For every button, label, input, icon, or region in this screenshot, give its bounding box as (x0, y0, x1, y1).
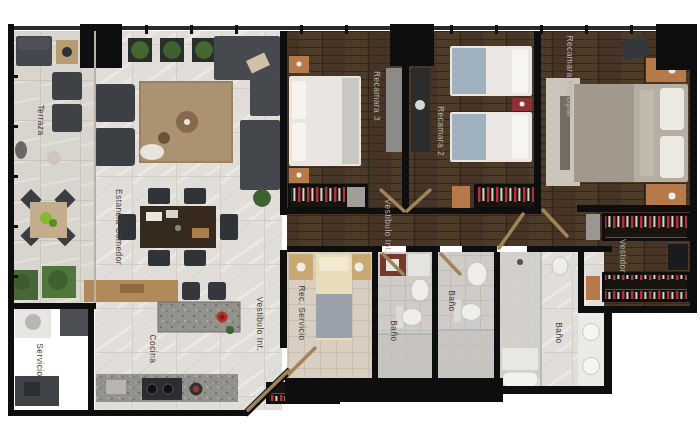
wall-living-recamaras (280, 31, 287, 215)
dining-chair (220, 214, 238, 240)
room-label-cocina: Cocina (148, 335, 158, 364)
wall-bano1-bano2 (432, 252, 438, 378)
dining-chair (184, 250, 206, 266)
toilet (461, 304, 481, 321)
wall-vestibulo-banos-1 (287, 246, 382, 252)
place-setting (146, 212, 162, 221)
pillow (292, 123, 306, 161)
wall-servicio-cocina (88, 309, 94, 410)
table-decor (184, 119, 190, 125)
room-label-vestibulo-recamaras: Vestibulo Int. (383, 199, 393, 253)
shelving-unit (386, 68, 402, 152)
wall-right-bath (604, 308, 612, 390)
wall-bano2-principal (494, 252, 500, 386)
room-label-recamara3: Recamara 3 (372, 71, 382, 121)
basin (297, 263, 306, 272)
lamp (297, 62, 302, 67)
kitchen-sink (106, 380, 126, 394)
wall-vestibulo-recservicio (280, 250, 287, 348)
table-lamp (62, 47, 72, 57)
mullion (190, 25, 193, 34)
wall-vestibulo-banos-4 (527, 246, 612, 252)
closet-drawers (347, 187, 365, 207)
cutting-board (120, 284, 144, 293)
desk (411, 68, 430, 152)
bath-cabinet (408, 254, 430, 276)
mullion (630, 25, 633, 34)
lamp (669, 193, 676, 200)
floor-terraza (13, 31, 95, 303)
duvet (574, 84, 634, 182)
blanket (452, 114, 486, 160)
desk-chair (415, 100, 425, 110)
lamp (520, 102, 525, 107)
nightstand (646, 184, 686, 208)
wall-vestidor-left (578, 246, 584, 306)
shag-rug (140, 144, 164, 160)
room-label-rec-servicio: Rec. Servicio (297, 285, 307, 340)
fruit (49, 219, 57, 227)
mullion (9, 75, 18, 78)
round-sink (583, 324, 600, 341)
basin (355, 263, 364, 272)
bar-stool (182, 282, 200, 300)
round-sink (583, 358, 600, 375)
bowl (175, 225, 181, 231)
closet-clothes (605, 275, 687, 299)
blanket (452, 48, 486, 94)
shower-zone-1 (378, 334, 432, 378)
mullion (9, 125, 18, 128)
plant (195, 41, 213, 59)
floorplan-canvas: Terraza Estancia Comedor Servicio Cocina… (0, 0, 700, 440)
skillet-food (193, 386, 199, 392)
pillow (319, 257, 349, 271)
wall-bottom-bath (499, 386, 612, 394)
toilet-tank (570, 258, 576, 274)
wall-recamaras-vestibulo (287, 208, 541, 214)
wall-bottom-left (8, 410, 248, 416)
sectional-sofa (214, 36, 280, 80)
small-round-table (47, 151, 61, 165)
room-label-bano-servicio: Baño (389, 320, 399, 341)
shower-bench (502, 348, 538, 370)
burner (147, 384, 157, 394)
wall-vestibulo-banos-3 (462, 246, 497, 252)
room-label-recamara2: Recamara 2 (436, 106, 446, 156)
wall-terraza-servicio (8, 303, 96, 309)
mullion (345, 25, 348, 34)
wall-vestibulo-banos-2 (406, 246, 440, 252)
bed-throw (342, 78, 359, 164)
wall-bottom-middle (285, 378, 503, 402)
washer-door (25, 314, 41, 330)
pillow (660, 88, 684, 130)
wardrobe (668, 244, 688, 270)
mullion (9, 275, 18, 278)
pot-inner (220, 315, 225, 320)
mullion (585, 25, 588, 34)
plant (253, 189, 271, 207)
mullion (495, 25, 498, 34)
mullion (450, 25, 453, 34)
shower-zone-2 (438, 330, 495, 378)
armchair (94, 128, 135, 166)
place-setting (166, 210, 178, 218)
closet-clothes (605, 216, 687, 238)
pillow (512, 115, 528, 159)
dining-chair (148, 188, 170, 204)
closet-clothes (291, 187, 345, 207)
mullion (235, 25, 238, 34)
plant (131, 41, 149, 59)
plant (48, 270, 68, 290)
mullion (540, 25, 543, 34)
lounge-chair (52, 104, 82, 132)
column (390, 24, 434, 66)
room-label-servicio: Servicio (35, 343, 45, 376)
cabinet (586, 276, 600, 300)
pedestal-sink (411, 279, 429, 301)
burner (163, 384, 173, 394)
serving-board (192, 228, 209, 238)
dining-chair (148, 250, 170, 266)
lamp (297, 173, 302, 178)
wall-recservicio-bano (372, 252, 378, 378)
pillow (292, 81, 306, 119)
room-label-bano-principal: Baño (554, 322, 564, 343)
room-label-terraza: Terraza (36, 104, 46, 135)
shower-drain (517, 259, 523, 265)
room-label-bano-secundario: Baño (447, 290, 457, 311)
blanket (316, 294, 352, 338)
lounge-chair (52, 72, 82, 100)
bar-stool (208, 282, 226, 300)
toilet (552, 257, 568, 275)
mullion (300, 25, 303, 34)
mullion (9, 175, 18, 178)
wall-recamara2-principal (534, 31, 541, 214)
sofa-chaise (250, 78, 280, 116)
coffee-table-small (158, 132, 170, 144)
pedestal-sink (467, 262, 487, 286)
room-label-vestibulo-entrada: Vestibulo Int. (255, 297, 265, 351)
armchair (94, 84, 135, 122)
mullion (145, 25, 148, 34)
tall-cabinet (60, 306, 88, 336)
laundry-sink (24, 382, 40, 396)
wall-vestidor-bottom (578, 306, 697, 313)
person-figure (15, 141, 27, 159)
room-label-vestidor: Vestidor (618, 239, 628, 273)
mullion (100, 25, 103, 34)
room-label-estancia-comedor: Estancia Comedor (114, 189, 124, 265)
room-label-recamara-principal: Recamara Principal (565, 35, 575, 116)
plant (226, 326, 234, 334)
sofa (240, 120, 280, 190)
closet-clothes (477, 187, 535, 207)
dresser (586, 214, 600, 240)
pillow-row (640, 90, 654, 176)
mullion (9, 225, 18, 228)
accent-chair (452, 186, 470, 208)
wall-left (8, 24, 14, 416)
wall-principal-vestidor (577, 205, 697, 212)
pillow (512, 49, 528, 93)
pillow (660, 136, 684, 178)
outdoor-sofa-cushion (18, 38, 50, 50)
dining-chair (184, 188, 206, 204)
toilet (402, 309, 422, 326)
wall-recamara3-recamara2 (402, 60, 409, 212)
floorplan-svg: Terraza Estancia Comedor Servicio Cocina… (0, 0, 700, 440)
bathtub (502, 372, 538, 387)
column (656, 24, 697, 70)
plant (163, 41, 181, 59)
